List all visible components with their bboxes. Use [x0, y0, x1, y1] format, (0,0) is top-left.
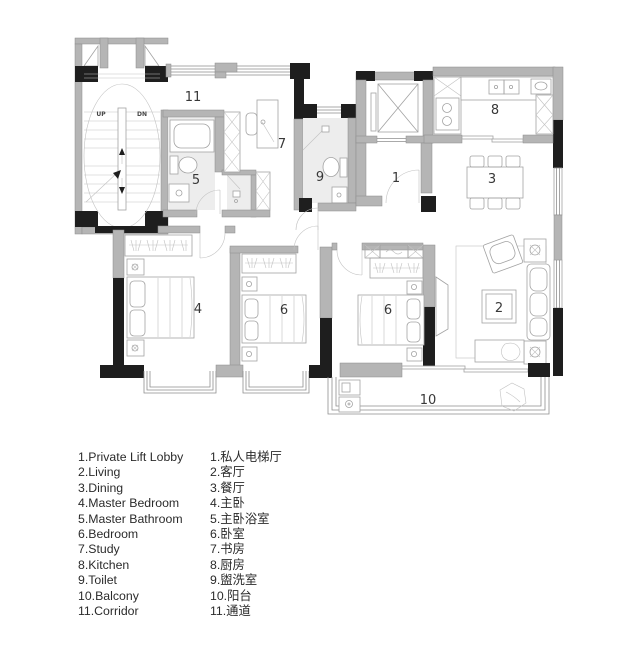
legend-item-en-3: 3.Dining	[78, 481, 210, 496]
side-table	[524, 341, 546, 364]
stair-up-label: UP	[96, 111, 106, 118]
nightstand	[127, 259, 144, 275]
kitchen: 8	[424, 67, 563, 168]
room-label-kitchen: 8	[491, 103, 499, 118]
bathtub	[170, 120, 214, 152]
kitchen-left-counter	[434, 77, 461, 134]
balcony-sliding-door	[402, 366, 465, 369]
master-bathroom: 5	[163, 110, 270, 217]
stair-core: UP DN	[75, 38, 168, 234]
tv-console	[436, 277, 448, 336]
dining-window-right	[554, 168, 562, 215]
legend-item-en-6: 6.Bedroom	[78, 527, 210, 542]
room-label-corridor: 11	[185, 90, 202, 105]
toilet-room: 9	[296, 104, 357, 230]
sliding-door	[462, 136, 493, 139]
shower-head-icon	[233, 191, 240, 197]
room-label-balcony: 10	[420, 393, 437, 408]
legend-item-en-8: 8.Kitchen	[78, 558, 210, 573]
legend-item-en-10: 10.Balcony	[78, 589, 210, 604]
legend-item-zh-3: 3.餐厅	[210, 481, 282, 496]
hatch-column-b	[256, 172, 270, 210]
toilet-master	[170, 156, 197, 174]
dining-chair	[470, 156, 484, 167]
nightstand	[127, 340, 144, 356]
bathroom-sink	[169, 184, 189, 202]
bay-window-bedroom	[243, 371, 309, 393]
room-label-bedroom-middle: 6	[280, 303, 288, 318]
room-label-dining: 3	[488, 172, 496, 187]
master-bedroom: 4	[95, 226, 235, 368]
bedroom-middle: 6	[230, 226, 332, 368]
nightstand	[242, 347, 257, 361]
legend: 1.Private Lift Lobby 2.Living 3.Dining 4…	[78, 450, 282, 619]
room-label-master-bedroom: 4	[194, 302, 202, 317]
sofa	[527, 264, 550, 340]
legend-item-en-4: 4.Master Bedroom	[78, 496, 210, 511]
balcony: 10	[328, 377, 549, 414]
room-label-master-bathroom: 5	[192, 173, 200, 188]
kitchen-tall-cabinet	[536, 95, 553, 134]
study: 7	[246, 100, 286, 152]
room-label-toilet: 9	[316, 170, 324, 185]
bench	[475, 340, 524, 362]
balcony-sink	[339, 397, 360, 412]
legend-item-zh-10: 10.阳台	[210, 589, 282, 604]
south-walls	[100, 363, 550, 393]
legend-item-zh-4: 4.主卧	[210, 496, 282, 511]
legend-item-zh-5: 5.主卧浴室	[210, 512, 282, 527]
wardrobe-master	[125, 235, 192, 256]
side-table	[524, 239, 546, 262]
legend-item-zh-9: 9.盥洗室	[210, 573, 282, 588]
room-label-living: 2	[495, 301, 503, 316]
floorplan-page: { "plan": { "room_numbers": { "r1": "1",…	[0, 0, 640, 663]
legend-item-zh-8: 8.厨房	[210, 558, 282, 573]
legend-item-en-5: 5.Master Bathroom	[78, 512, 210, 527]
desk-chair	[246, 113, 257, 135]
room-label-bedroom-right: 6	[384, 303, 392, 318]
balcony-washer	[339, 380, 360, 395]
nightstand	[242, 277, 257, 291]
nightstand	[407, 281, 422, 294]
legend-item-en-11: 11.Corridor	[78, 604, 210, 619]
floor-plan-svg: UP DN 11	[0, 0, 640, 440]
toilet-sink	[332, 187, 347, 203]
bed-middle	[242, 295, 306, 343]
legend-item-zh-6: 6.卧室	[210, 527, 282, 542]
legend-item-en-2: 2.Living	[78, 465, 210, 480]
bed-master	[127, 277, 194, 338]
room-label-study: 7	[278, 137, 286, 152]
bay-window-master	[144, 371, 216, 393]
floor-plan: UP DN 11	[0, 0, 640, 440]
legend-item-zh-2: 2.客厅	[210, 465, 282, 480]
stair-down-label: DN	[137, 111, 147, 118]
lift-shaft	[356, 71, 433, 143]
balcony-plant	[500, 383, 526, 411]
legend-item-zh-7: 7.书房	[210, 542, 282, 557]
hatch-column-a	[224, 112, 240, 172]
wardrobe-bedroom-middle	[242, 254, 296, 273]
armchair	[483, 234, 523, 273]
legend-item-zh-11: 11.通道	[210, 604, 282, 619]
legend-chinese-column: 1.私人电梯厅 2.客厅 3.餐厅 4.主卧 5.主卧浴室 6.卧室 7.书房 …	[210, 450, 282, 619]
toilet-fixture	[323, 158, 347, 178]
desk	[257, 100, 278, 148]
shower-head-icon-2	[322, 126, 329, 132]
room-label-lift-lobby: 1	[392, 171, 400, 186]
nightstand	[407, 348, 422, 361]
legend-item-zh-1: 1.私人电梯厅	[210, 450, 282, 465]
living-room: 2	[436, 234, 550, 364]
legend-item-en-7: 7.Study	[78, 542, 210, 557]
legend-english-column: 1.Private Lift Lobby 2.Living 3.Dining 4…	[78, 450, 210, 619]
living-window-right	[554, 260, 562, 308]
legend-item-en-1: 1.Private Lift Lobby	[78, 450, 210, 465]
bedroom-right: 6	[332, 243, 435, 368]
legend-item-en-9: 9.Toilet	[78, 573, 210, 588]
private-lift-lobby: 1	[356, 143, 436, 212]
